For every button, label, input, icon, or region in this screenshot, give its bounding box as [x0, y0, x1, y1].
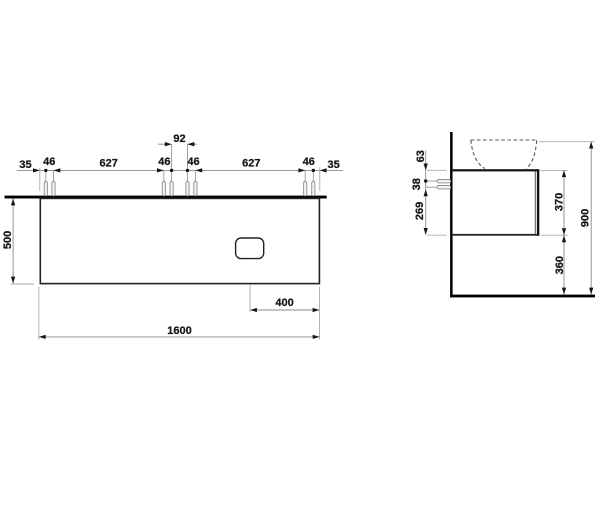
svg-text:46: 46 [303, 156, 315, 168]
svg-text:500: 500 [2, 231, 14, 249]
svg-text:46: 46 [158, 156, 170, 168]
svg-text:269: 269 [414, 202, 426, 220]
svg-text:360: 360 [554, 256, 566, 274]
svg-text:46: 46 [43, 156, 55, 168]
svg-text:46: 46 [187, 156, 199, 168]
svg-text:63: 63 [415, 150, 427, 162]
svg-text:38: 38 [411, 178, 423, 190]
svg-text:1600: 1600 [167, 325, 191, 337]
svg-text:627: 627 [100, 158, 118, 170]
svg-text:900: 900 [580, 209, 592, 227]
svg-text:400: 400 [275, 297, 293, 309]
svg-text:370: 370 [554, 193, 566, 211]
svg-text:92: 92 [173, 133, 185, 145]
svg-text:35: 35 [327, 159, 339, 171]
svg-text:627: 627 [242, 158, 260, 170]
svg-text:35: 35 [19, 159, 31, 171]
